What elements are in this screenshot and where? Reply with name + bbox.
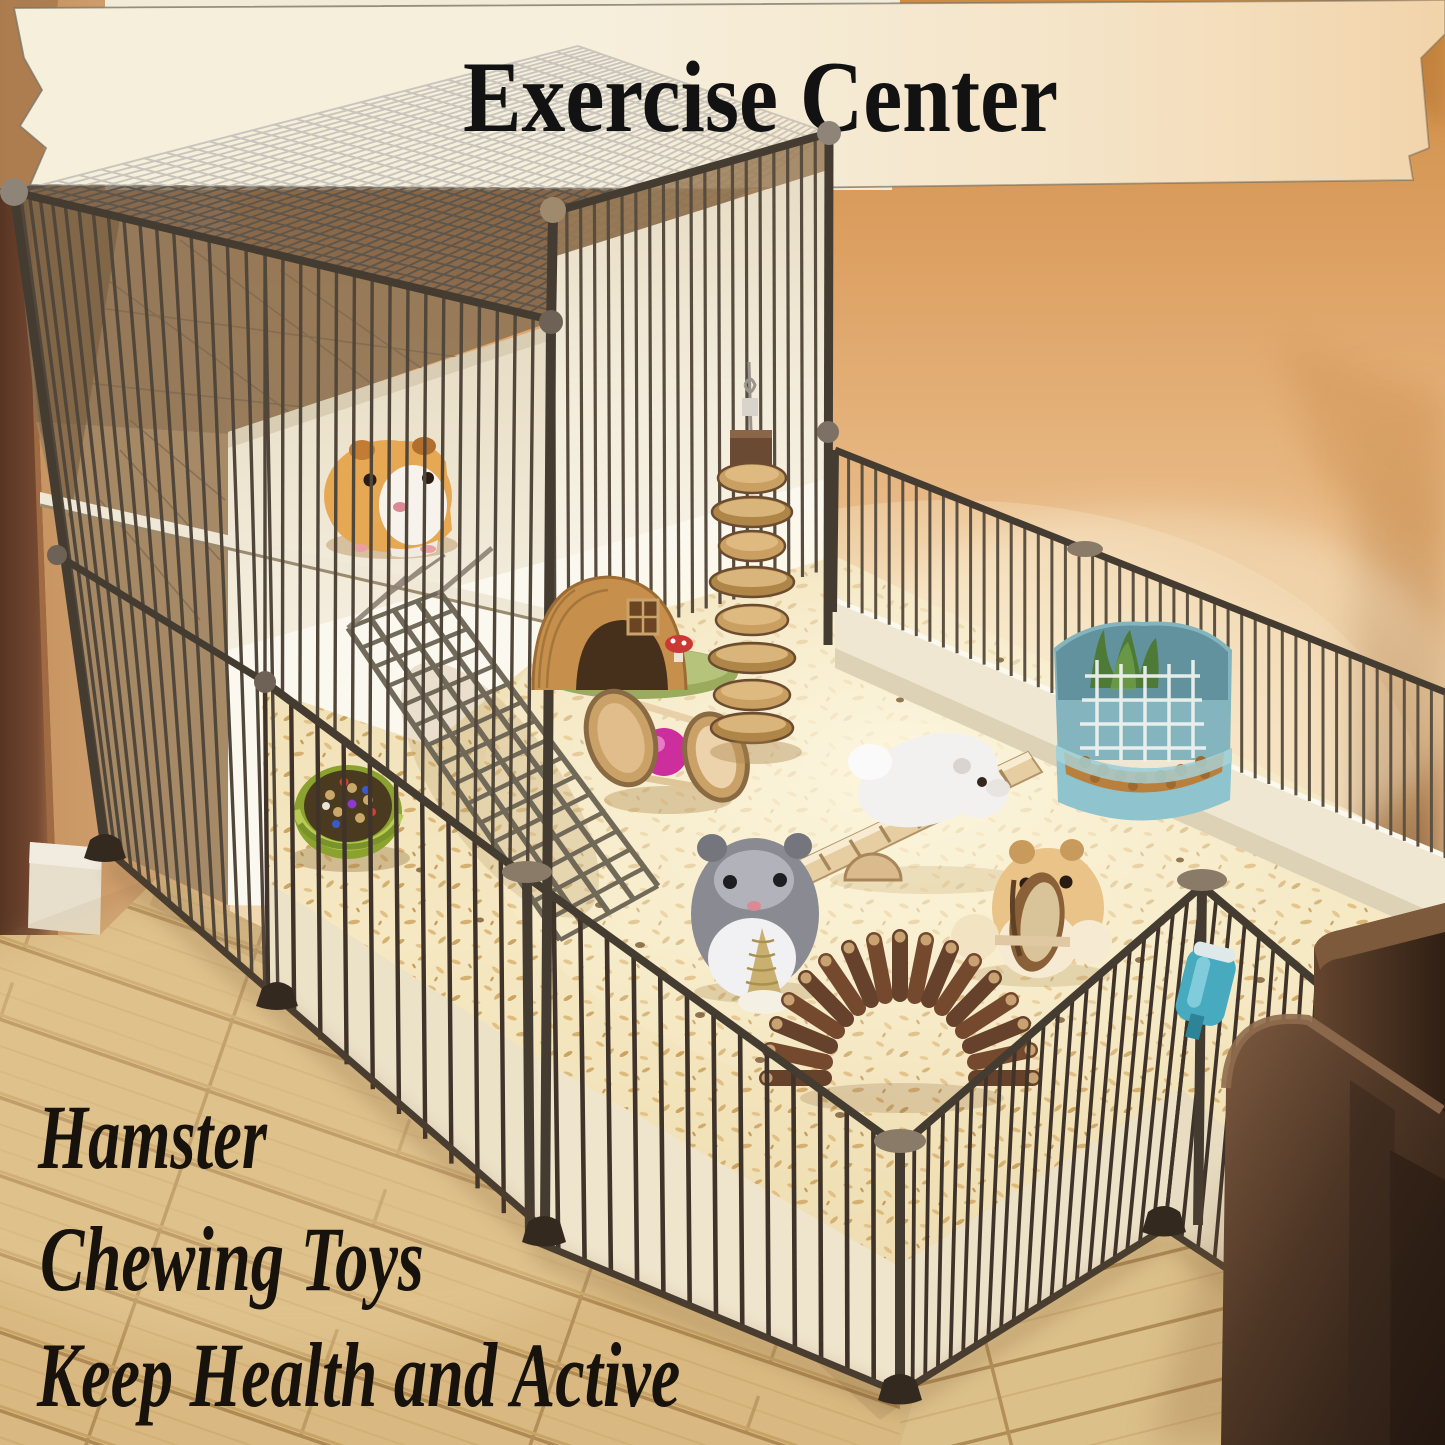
svg-text:Hamster: Hamster [37, 1087, 268, 1189]
svg-text:Chewing Toys: Chewing Toys [40, 1209, 424, 1311]
svg-text:Exercise Center: Exercise Center [463, 40, 1058, 154]
svg-text:Keep Health and Active: Keep Health and Active [36, 1326, 680, 1427]
